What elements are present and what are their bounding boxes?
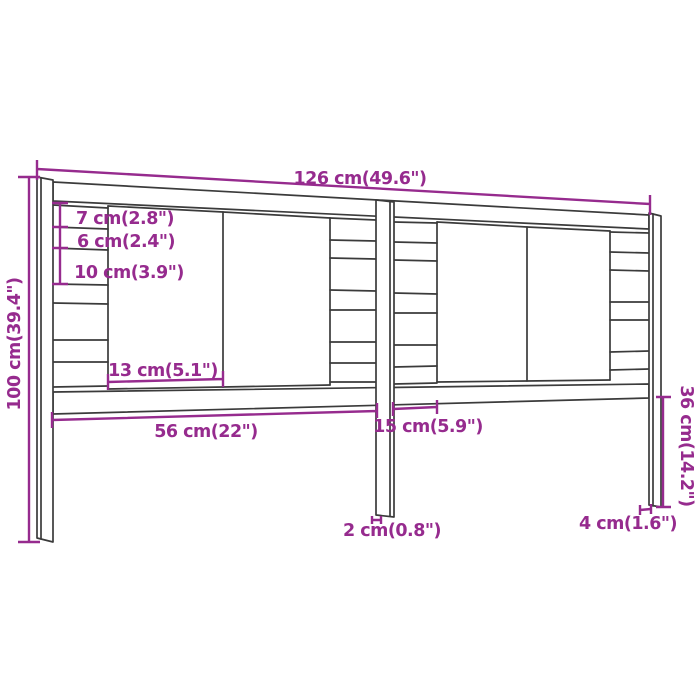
- label-slat-gap-top: 7 cm(2.8"): [76, 209, 174, 229]
- right-leg-post: [649, 213, 661, 507]
- label-slat-gap-bottom: 10 cm(3.9"): [74, 263, 184, 283]
- label-side-leg-thickness: 4 cm(1.6"): [579, 514, 677, 534]
- label-overall-height: 100 cm(39.4"): [5, 277, 25, 410]
- center-leg-post: [376, 200, 394, 517]
- left-leg-post: [37, 177, 53, 542]
- slat-ladder-right: [610, 232, 649, 370]
- label-leg-height: 36 cm(14.2"): [676, 385, 696, 506]
- slat-ladder-center-right: [394, 222, 437, 384]
- label-slat-gap-mid: 6 cm(2.4"): [77, 232, 175, 252]
- diagram-canvas: 126 cm(49.6") 100 cm(39.4") 7 cm(2.8") 6…: [0, 0, 700, 700]
- slat-ladder-center-left: [330, 218, 376, 382]
- label-overall-width: 126 cm(49.6"): [293, 169, 426, 189]
- label-lower-span-left: 56 cm(22"): [154, 422, 258, 442]
- label-panel-width: 13 cm(5.1"): [108, 361, 218, 381]
- label-center-leg-thickness: 2 cm(0.8"): [343, 521, 441, 541]
- label-lower-span-mid: 15 cm(5.9"): [373, 417, 483, 437]
- dim-line-slat-gaps: [52, 203, 68, 284]
- headboard-dimension-diagram: 126 cm(49.6") 100 cm(39.4") 7 cm(2.8") 6…: [0, 0, 700, 700]
